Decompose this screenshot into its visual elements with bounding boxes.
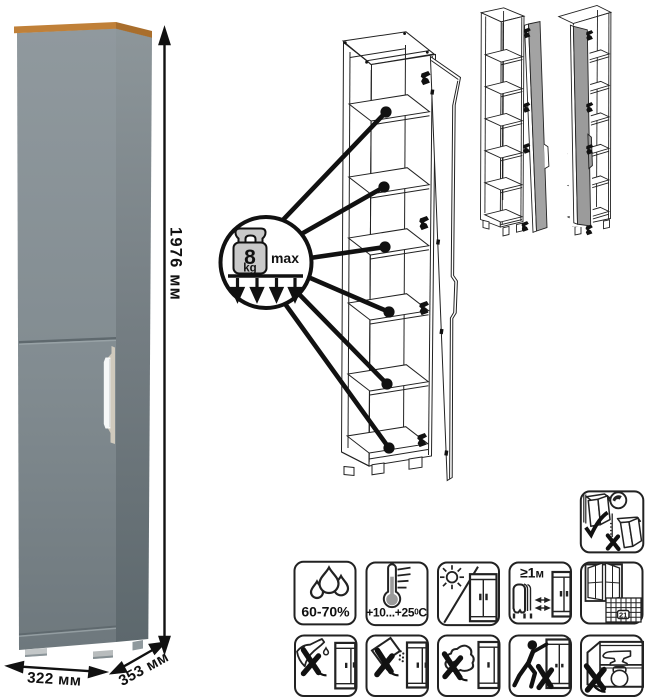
svg-text:max: max [271, 250, 299, 266]
svg-text:1976 мм: 1976 мм [167, 227, 185, 301]
svg-text:60-70%: 60-70% [301, 604, 350, 620]
svg-text:21: 21 [619, 610, 627, 619]
svg-text:kg: kg [243, 263, 256, 275]
svg-text:+10...+250C: +10...+250C [366, 606, 427, 620]
svg-text:322 мм: 322 мм [27, 669, 82, 689]
